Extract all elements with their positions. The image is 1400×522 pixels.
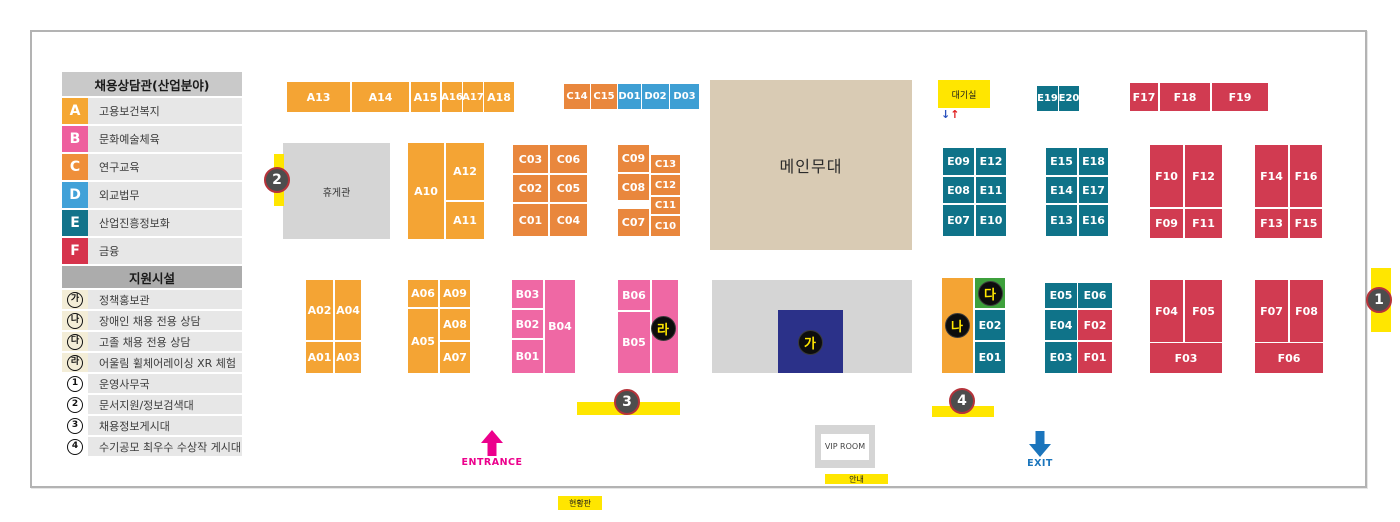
- booth-c11: C11: [651, 197, 680, 214]
- booth-e01: E01: [975, 342, 1005, 373]
- legend-facility-7: 3채용정보게시대: [62, 416, 242, 435]
- entrance-arrow-icon: [481, 430, 503, 456]
- facility-symbol-cell: 가: [62, 290, 88, 309]
- booth-f07: F07: [1255, 280, 1288, 342]
- waiting-room: 대기실: [938, 80, 990, 108]
- booth-d03: D03: [670, 84, 699, 109]
- legend-industries: A고용보건복지B문화예술체육C연구교육D외교법무E산업진흥정보화F금융: [62, 98, 242, 264]
- rest-area-label: 휴게관: [323, 184, 351, 199]
- booth-a02: A02: [306, 280, 333, 340]
- booth-a17: A17: [463, 82, 483, 112]
- industry-letter-d: D: [62, 182, 88, 208]
- status-board-label: 현황판: [569, 498, 591, 509]
- legend-panel: 채용상담관(산업분야) A고용보건복지B문화예술체육C연구교육D외교법무E산업진…: [62, 72, 242, 456]
- booth-f11: F11: [1185, 209, 1222, 238]
- facility-label: 운영사무국: [88, 374, 242, 393]
- booth-e12: E12: [976, 148, 1006, 175]
- facility-label: 정책홍보관: [88, 290, 242, 309]
- booth-e10: E10: [976, 205, 1006, 236]
- booth-c01: C01: [513, 204, 548, 236]
- marker-1: 1: [1366, 287, 1392, 313]
- booth-f12: F12: [1185, 145, 1222, 207]
- marker-3: 3: [614, 389, 640, 415]
- booth-a01: A01: [306, 342, 333, 373]
- facility-marker-나: 나: [945, 313, 970, 338]
- booth-a11: A11: [446, 202, 484, 239]
- booth-e16: E16: [1079, 205, 1108, 236]
- legend-facility-6: 2문서지원/정보검색대: [62, 395, 242, 414]
- legend-title: 채용상담관(산업분야): [62, 72, 242, 96]
- booth-b04: B04: [545, 280, 575, 373]
- vip-room-sign: VIP ROOM: [821, 434, 869, 460]
- industry-label: 외교법무: [88, 182, 242, 208]
- booth-e03: E03: [1045, 342, 1077, 373]
- facility-symbol-cell: 2: [62, 395, 88, 414]
- booth-f15: F15: [1290, 209, 1322, 238]
- vip-room-label: VIP ROOM: [825, 442, 865, 451]
- booth-f17: F17: [1130, 83, 1158, 111]
- circled-hangul-icon: 나: [67, 313, 83, 329]
- industry-label: 산업진흥정보화: [88, 210, 242, 236]
- facility-label: 수기공모 최우수 수상작 게시대: [88, 437, 242, 456]
- legend-facilities: 가정책홍보관나장애인 채용 전용 상담다고졸 채용 전용 상담라어울림 휠체어레…: [62, 290, 242, 456]
- booth-e06: E06: [1078, 283, 1112, 308]
- booth-f04: F04: [1150, 280, 1183, 342]
- booth-a03: A03: [335, 342, 361, 373]
- facility-label: 어울림 휠체어레이싱 XR 체험: [88, 353, 242, 372]
- legend-industry-c: C연구교육: [62, 154, 242, 180]
- main-stage: 메인무대: [710, 80, 912, 250]
- booth-f01: F01: [1078, 342, 1112, 373]
- industry-letter-e: E: [62, 210, 88, 236]
- booth-e14: E14: [1046, 177, 1077, 203]
- booth-f10: F10: [1150, 145, 1183, 207]
- booth-a16: A16: [442, 82, 462, 112]
- booth-f03: F03: [1150, 343, 1222, 373]
- booth-a09: A09: [440, 280, 470, 307]
- facility-marker-라: 라: [651, 316, 676, 341]
- legend-facility-5: 1운영사무국: [62, 374, 242, 393]
- circled-hangul-icon: 다: [67, 334, 83, 350]
- booth-f06: F06: [1255, 343, 1323, 373]
- facility-symbol-cell: 1: [62, 374, 88, 393]
- booth-b01: B01: [512, 340, 543, 373]
- booth-f19: F19: [1212, 83, 1268, 111]
- industry-label: 연구교육: [88, 154, 242, 180]
- facility-marker-다: 다: [978, 281, 1003, 306]
- facility-label: 채용정보게시대: [88, 416, 242, 435]
- circled-number-icon: 1: [67, 376, 83, 392]
- floor-plan: 채용상담관(산업분야) A고용보건복지B문화예술체육C연구교육D외교법무E산업진…: [0, 0, 1400, 522]
- facility-symbol-cell: 다: [62, 332, 88, 351]
- exit-arrow-icon: [1029, 431, 1051, 457]
- booth-c07: C07: [618, 209, 649, 236]
- booth-e13: E13: [1046, 205, 1077, 236]
- booth-f14: F14: [1255, 145, 1288, 207]
- booth-a10: A10: [408, 143, 444, 239]
- industry-letter-b: B: [62, 126, 88, 152]
- rest-area: 휴게관: [283, 143, 390, 239]
- booth-a06: A06: [408, 280, 438, 307]
- booth-f08: F08: [1290, 280, 1323, 342]
- legend-facility-2: 나장애인 채용 전용 상담: [62, 311, 242, 330]
- legend-industry-b: B문화예술체육: [62, 126, 242, 152]
- legend-industry-f: F금융: [62, 238, 242, 264]
- booth-a13: A13: [287, 82, 350, 112]
- booth-e02: E02: [975, 310, 1005, 340]
- circled-hangul-icon: 가: [67, 292, 83, 308]
- booth-a07: A07: [440, 342, 470, 373]
- up-arrow-icon: ↑: [950, 108, 959, 121]
- entrance-marker: ENTRANCE: [462, 430, 522, 468]
- booth-e07: E07: [943, 205, 974, 236]
- booth-c10: C10: [651, 216, 680, 236]
- booth-e11: E11: [976, 177, 1006, 203]
- booth-f05: F05: [1185, 280, 1222, 342]
- legend-industry-e: E산업진흥정보화: [62, 210, 242, 236]
- exit-marker: EXIT: [1016, 431, 1064, 469]
- booth-b06: B06: [618, 280, 650, 310]
- booth-b02: B02: [512, 310, 543, 338]
- booth-c13: C13: [651, 155, 680, 173]
- marker-4: 4: [949, 388, 975, 414]
- booth-d01: D01: [618, 84, 641, 109]
- facility-symbol-cell: 라: [62, 353, 88, 372]
- entrance-label: ENTRANCE: [462, 457, 523, 468]
- booth-b03: B03: [512, 280, 543, 308]
- booth-e18: E18: [1079, 148, 1108, 175]
- booth-d02: D02: [642, 84, 669, 109]
- facility-label: 장애인 채용 전용 상담: [88, 311, 242, 330]
- booth-c08: C08: [618, 174, 649, 200]
- industry-label: 고용보건복지: [88, 98, 242, 124]
- info-desk: 안내: [825, 474, 888, 484]
- booth-e17: E17: [1079, 177, 1108, 203]
- booth-f02: F02: [1078, 310, 1112, 340]
- booth-a12: A12: [446, 143, 484, 200]
- marker-2: 2: [264, 167, 290, 193]
- booth-f13: F13: [1255, 209, 1288, 238]
- vip-room: VIP ROOM: [815, 425, 875, 468]
- down-arrow-icon: ↓: [941, 108, 950, 121]
- facility-symbol-cell: 4: [62, 437, 88, 456]
- booth-a14: A14: [352, 82, 409, 112]
- legend-facility-3: 다고졸 채용 전용 상담: [62, 332, 242, 351]
- booth-a08: A08: [440, 309, 470, 340]
- facility-symbol-cell: 3: [62, 416, 88, 435]
- legend-facilities-title: 지원시설: [62, 266, 242, 288]
- booth-a15: A15: [411, 82, 440, 112]
- booth-e09: E09: [943, 148, 974, 175]
- industry-letter-a: A: [62, 98, 88, 124]
- legend-facility-8: 4수기공모 최우수 수상작 게시대: [62, 437, 242, 456]
- booth-c03: C03: [513, 145, 548, 173]
- booth-f18: F18: [1160, 83, 1210, 111]
- booth-b05: B05: [618, 312, 650, 373]
- waiting-room-label: 대기실: [952, 88, 977, 101]
- booth-e15: E15: [1046, 148, 1077, 175]
- legend-industry-d: D외교법무: [62, 182, 242, 208]
- booth-c05: C05: [550, 175, 587, 202]
- industry-letter-f: F: [62, 238, 88, 264]
- booth-e05: E05: [1045, 283, 1077, 308]
- exit-label: EXIT: [1027, 458, 1053, 469]
- booth-e19: E19: [1037, 86, 1058, 111]
- booth-e08: E08: [943, 177, 974, 203]
- circled-number-icon: 2: [67, 397, 83, 413]
- industry-letter-c: C: [62, 154, 88, 180]
- facility-marker-가: 가: [798, 330, 823, 355]
- booth-c06: C06: [550, 145, 587, 173]
- booth-f09: F09: [1150, 209, 1183, 238]
- booth-c15: C15: [591, 84, 617, 109]
- waiting-room-arrows: ↓↑: [939, 108, 961, 121]
- booth-c04: C04: [550, 204, 587, 236]
- legend-facility-1: 가정책홍보관: [62, 290, 242, 309]
- booth-a04: A04: [335, 280, 361, 340]
- booth-e20: E20: [1059, 86, 1079, 111]
- circled-hangul-icon: 라: [67, 355, 83, 371]
- legend-facility-4: 라어울림 휠체어레이싱 XR 체험: [62, 353, 242, 372]
- booth-a18: A18: [484, 82, 514, 112]
- booth-c02: C02: [513, 175, 548, 202]
- booth-c12: C12: [651, 175, 680, 195]
- status-board: 현황판: [558, 496, 602, 510]
- booth-f16: F16: [1290, 145, 1322, 207]
- facility-symbol-cell: 나: [62, 311, 88, 330]
- facility-label: 문서지원/정보검색대: [88, 395, 242, 414]
- industry-label: 금융: [88, 238, 242, 264]
- facility-label: 고졸 채용 전용 상담: [88, 332, 242, 351]
- booth-a05: A05: [408, 309, 438, 373]
- legend-industry-a: A고용보건복지: [62, 98, 242, 124]
- booth-c14: C14: [564, 84, 590, 109]
- booth-c09: C09: [618, 145, 649, 172]
- circled-number-icon: 3: [67, 418, 83, 434]
- main-stage-label: 메인무대: [780, 153, 843, 177]
- booth-e04: E04: [1045, 310, 1077, 340]
- industry-label: 문화예술체육: [88, 126, 242, 152]
- circled-number-icon: 4: [67, 439, 83, 455]
- info-desk-label: 안내: [849, 474, 864, 485]
